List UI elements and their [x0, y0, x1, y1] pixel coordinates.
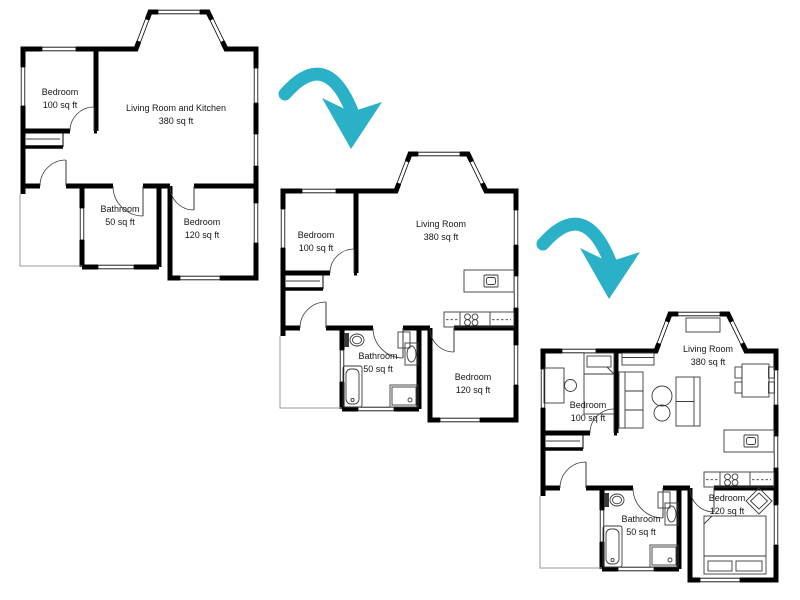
room-label-name: Bedroom — [42, 87, 79, 97]
room-label-area: 380 sq ft — [691, 357, 726, 367]
bathroom-sink-icon — [405, 343, 418, 365]
floor-plan-progression-figure: Bedroom100 sq ftLiving Room and Kitchen3… — [0, 0, 800, 600]
curved-arrow-icon — [543, 224, 640, 299]
floor-plan-stage-3-furnished: Bedroom100 sq ftLiving Room380 sq ftBath… — [538, 310, 782, 592]
room-label-area: 380 sq ft — [159, 116, 194, 126]
room-label-area: 50 sq ft — [626, 527, 656, 537]
progress-arrow-1 — [281, 58, 393, 155]
bathtub-icon — [343, 366, 362, 407]
sofa-icon — [619, 372, 643, 428]
furniture — [544, 318, 775, 574]
bathroom-shelf-icon — [398, 332, 410, 348]
room-label-name: Bedroom — [455, 372, 492, 382]
room-labels: Bedroom100 sq ftLiving Room380 sq ftBath… — [298, 219, 492, 395]
progress-arrow-2 — [539, 208, 651, 305]
room-label-area: 120 sq ft — [710, 506, 745, 516]
room-label-name: Bathroom — [100, 204, 139, 214]
room-label-area: 120 sq ft — [456, 385, 491, 395]
bathroom-shelf-icon — [658, 492, 670, 508]
deck-outline — [20, 194, 82, 266]
room-label-area: 100 sq ft — [299, 243, 334, 253]
room-label-name: Bathroom — [621, 514, 660, 524]
deck-outline — [280, 336, 342, 408]
room-label-area: 380 sq ft — [424, 232, 459, 242]
bathroom-sink-icon — [665, 503, 678, 525]
room-labels: Bedroom100 sq ftLiving Room380 sq ftBath… — [570, 344, 746, 537]
double-bed-icon — [704, 516, 766, 574]
kitchen-counter-stove-icon — [704, 472, 774, 487]
kitchen-counter-stove-icon — [444, 312, 514, 327]
media-cabinet-icon — [622, 353, 654, 365]
bedroom-closet — [543, 434, 583, 449]
bathtub-icon — [603, 526, 622, 567]
kitchen-island-icon — [724, 430, 774, 452]
floor-plan-stage-1-original: Bedroom100 sq ftLiving Room and Kitchen3… — [18, 8, 262, 290]
floor-plan-stage-2-fixtures: Bedroom100 sq ftLiving Room380 sq ftBath… — [278, 150, 522, 432]
room-label-name: Bedroom — [570, 400, 607, 410]
room-label-area: 120 sq ft — [185, 230, 220, 240]
room-label-area: 100 sq ft — [571, 413, 606, 423]
bedroom-closet — [23, 132, 63, 147]
room-label-name: Bedroom — [298, 230, 335, 240]
armchair-icon — [676, 377, 700, 426]
shower-icon — [650, 545, 678, 567]
room-label-area: 100 sq ft — [43, 100, 78, 110]
curved-arrow-icon — [285, 74, 382, 149]
room-label-name: Bedroom — [184, 217, 221, 227]
bay-window-seat-icon — [686, 318, 720, 332]
room-label-name: Living Room and Kitchen — [126, 103, 226, 113]
bedroom-closet — [283, 274, 323, 289]
coffee-tables-icon — [652, 386, 672, 421]
room-label-name: Bathroom — [358, 351, 397, 361]
toilet-icon — [344, 333, 364, 347]
room-labels: Bedroom100 sq ftLiving Room and Kitchen3… — [42, 87, 226, 240]
kitchen-fixtures — [444, 270, 514, 327]
deck-outline — [540, 496, 602, 568]
shower-icon — [390, 385, 418, 407]
room-label-name: Bedroom — [709, 493, 746, 503]
windows — [541, 312, 778, 582]
windows — [21, 10, 258, 280]
kitchen-fixtures — [704, 430, 774, 487]
accent-chair-icon — [746, 488, 772, 514]
room-label-name: Living Room — [683, 344, 733, 354]
toilet-icon — [604, 493, 624, 507]
room-label-area: 50 sq ft — [105, 217, 135, 227]
kitchen-island-icon — [464, 270, 514, 292]
room-label-area: 50 sq ft — [363, 364, 393, 374]
dining-set-icon — [735, 364, 775, 397]
desk-chair-icon — [544, 368, 577, 403]
room-label-name: Living Room — [416, 219, 466, 229]
